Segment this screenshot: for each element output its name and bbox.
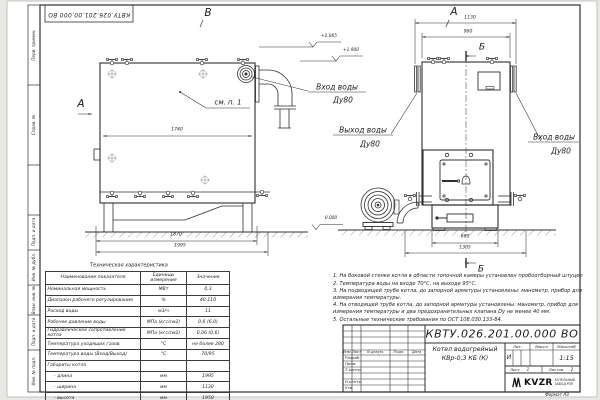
title-block-doc-number: КВТУ.026.201.00.000 ВО <box>426 329 579 340</box>
cell: МПа (кгс/см2) <box>141 328 187 339</box>
dim-side-total: 1995 <box>174 245 186 250</box>
cell: Диапазон рабочего регулирования <box>46 295 141 306</box>
frame-label: Взам. инв. № <box>32 286 36 314</box>
cell: Гидравлическое сопротивление котла <box>46 328 141 339</box>
label-water-inlet-side-dn: Ду80 <box>333 96 353 104</box>
product-name: Котел водогрейный <box>433 347 498 353</box>
table-row: Габариты котла <box>46 360 230 371</box>
note-5: 5. Остальные технические требования по О… <box>333 317 584 324</box>
table-header-row: Наименование показателя Единицы измерени… <box>46 272 230 285</box>
cell: Рабочее давление воды <box>46 317 141 328</box>
view-label-a-top: А <box>450 7 457 18</box>
cell: Температура уходящих газов <box>46 339 141 350</box>
cell: Температура воды (Вход/Выход) <box>46 350 141 361</box>
frame-label: Справ. № <box>32 115 36 135</box>
cell: °С <box>141 339 187 350</box>
product-name-2: КВр-0,3 КБ (К) <box>442 356 488 362</box>
frame-label: Подп. и дата <box>32 318 36 347</box>
col-header: Значение <box>187 272 230 285</box>
view-label-b: В <box>204 8 211 19</box>
section-label-b-top: Б <box>479 44 485 53</box>
col-list: Лист <box>352 351 361 355</box>
table-row: - высотамм1950 <box>46 393 230 400</box>
table-row: Температура воды (Вход/Выход)°С70/95 <box>46 350 230 361</box>
company-name: KVZR <box>524 378 553 388</box>
cell: °С <box>141 350 187 361</box>
col-doc: N докум. <box>367 351 384 355</box>
view-label-a-side: А <box>77 99 84 110</box>
dim-side-base: 1870 <box>170 234 182 239</box>
sig-row-razrab: Разраб. <box>345 356 360 360</box>
sheet-value: 1 <box>527 367 530 371</box>
sheets-label: Листов <box>549 368 564 372</box>
cell: - ширина <box>46 382 141 393</box>
dim-front-base: 660 <box>461 236 470 241</box>
callout-see-item-1: см. п. 1 <box>214 100 241 107</box>
col-sign: Подп. <box>394 351 405 355</box>
cell: 1995 <box>187 371 230 382</box>
frame-label: Подп. и дата <box>32 218 36 247</box>
note-3: 3. На подводящей трубе котла, до запорно… <box>333 288 584 301</box>
col-izm: Изм. <box>343 351 351 355</box>
sheet-label: Лист <box>510 368 520 372</box>
company-logo: KVZR КОТЕЛЬНЫЙ ЗАВОД РЭП <box>508 374 578 391</box>
col-header: Единицы измерения <box>141 272 187 285</box>
table-row: - ширинамм1130 <box>46 382 230 393</box>
frame-label: Инв. № дубл. <box>32 253 36 282</box>
ground-hatch <box>85 233 308 238</box>
elevation-ground: 0.000 <box>325 217 337 221</box>
table-title: Техническая характеристика <box>90 264 168 269</box>
sig-row-utv: Утв. <box>345 386 353 390</box>
cell: Номинальная мощность <box>46 285 141 296</box>
format-label: Формат А3 <box>545 393 569 397</box>
col-header: Наименование показателя <box>46 272 141 285</box>
sig-row-prov: Пров. <box>345 362 356 366</box>
cell: м3/ч <box>141 306 187 317</box>
cell: МВт <box>141 285 187 296</box>
table-row: Расход водым3/ч11 <box>46 306 230 317</box>
cell: мм <box>141 382 187 393</box>
sig-row-nkontr: Н.контр. <box>345 380 362 384</box>
label-water-outlet: Выход воды <box>339 126 387 134</box>
sig-row-tkontr: Т.контр. <box>345 368 362 372</box>
table-row: Диапазон рабочего регулирования%40-110 <box>46 295 230 306</box>
cell: 70/95 <box>187 350 230 361</box>
scale-header: Масштаб <box>557 345 576 349</box>
frame-label: Инв. № подл. <box>32 357 36 386</box>
cell: % <box>141 295 187 306</box>
lit-value: И <box>507 355 512 361</box>
ground-hatch <box>338 231 556 236</box>
label-water-inlet-side: Вход воды <box>316 83 358 91</box>
label-water-inlet-front: Вход воды <box>533 133 575 141</box>
inlet-flange-icon <box>238 66 255 83</box>
cell: 1950 <box>187 393 230 400</box>
drawing-sheet: KVZR.RU KVZR.RU KVZR.RU KVZR.RU KVZR.RU … <box>0 0 600 400</box>
cell: 0,06 (0,6) <box>187 328 230 339</box>
technical-notes: 1. На боковой стенке котла в области топ… <box>333 273 584 324</box>
table-row: - длинамм1995 <box>46 371 230 382</box>
dim-side-width: 1740 <box>171 129 183 134</box>
col-date: Дата <box>412 351 421 355</box>
note-1: 1. На боковой стенке котла в области топ… <box>333 273 584 280</box>
table-row: Гидравлическое сопротивление котлаМПа (к… <box>46 328 230 339</box>
kvzr-spring-icon <box>511 377 522 388</box>
note-2: 2. Температура воды на входе 70°С, на вы… <box>333 281 584 288</box>
label-water-inlet-front-dn: Ду80 <box>551 147 571 155</box>
dim-front-total: 1130 <box>464 16 476 21</box>
company-sub-2: ЗАВОД РЭП <box>555 383 575 387</box>
cell: - длина <box>46 371 141 382</box>
mass-header: Масса <box>535 345 547 349</box>
table-row: Температура уходящих газов°Сне более 280 <box>46 339 230 350</box>
dim-front-top: 960 <box>464 30 473 35</box>
doc-number-stamp: КВТУ.026.201.00.000 ВО <box>48 11 130 17</box>
cell: - высота <box>46 393 141 400</box>
cell <box>141 360 187 371</box>
cell: 0,6 (6,0) <box>187 317 230 328</box>
label-water-outlet-dn: Ду80 <box>360 140 380 148</box>
elevation-mid: +1.900 <box>343 49 359 53</box>
note-4: 4. На отводящей трубе котла, до запорной… <box>333 302 584 315</box>
dim-front-span: 1305 <box>459 246 471 251</box>
cell: Расход воды <box>46 306 141 317</box>
cell: мм <box>141 371 187 382</box>
cell: 11 <box>187 306 230 317</box>
sheets-value: 2 <box>571 367 574 371</box>
lit-header: Лит. <box>513 345 522 349</box>
cell: 1130 <box>187 382 230 393</box>
cell: мм <box>141 393 187 400</box>
cell: Габариты котла <box>46 360 141 371</box>
cell: 0,3 <box>187 285 230 296</box>
cell: не более 280 <box>187 339 230 350</box>
table-row: Рабочее давление водыМПа (кгс/см2)0,6 (6… <box>46 317 230 328</box>
elevation-top: +2.065 <box>321 35 337 39</box>
table-row: Номинальная мощностьМВт0,3 <box>46 285 230 296</box>
cell: МПа (кгс/см2) <box>141 317 187 328</box>
cell <box>187 360 230 371</box>
cell: 40-110 <box>187 295 230 306</box>
frame-label: Перв. примен. <box>32 29 36 60</box>
scale-value: 1:15 <box>559 355 574 362</box>
tech-table: Наименование показателя Единицы измерени… <box>45 271 230 400</box>
